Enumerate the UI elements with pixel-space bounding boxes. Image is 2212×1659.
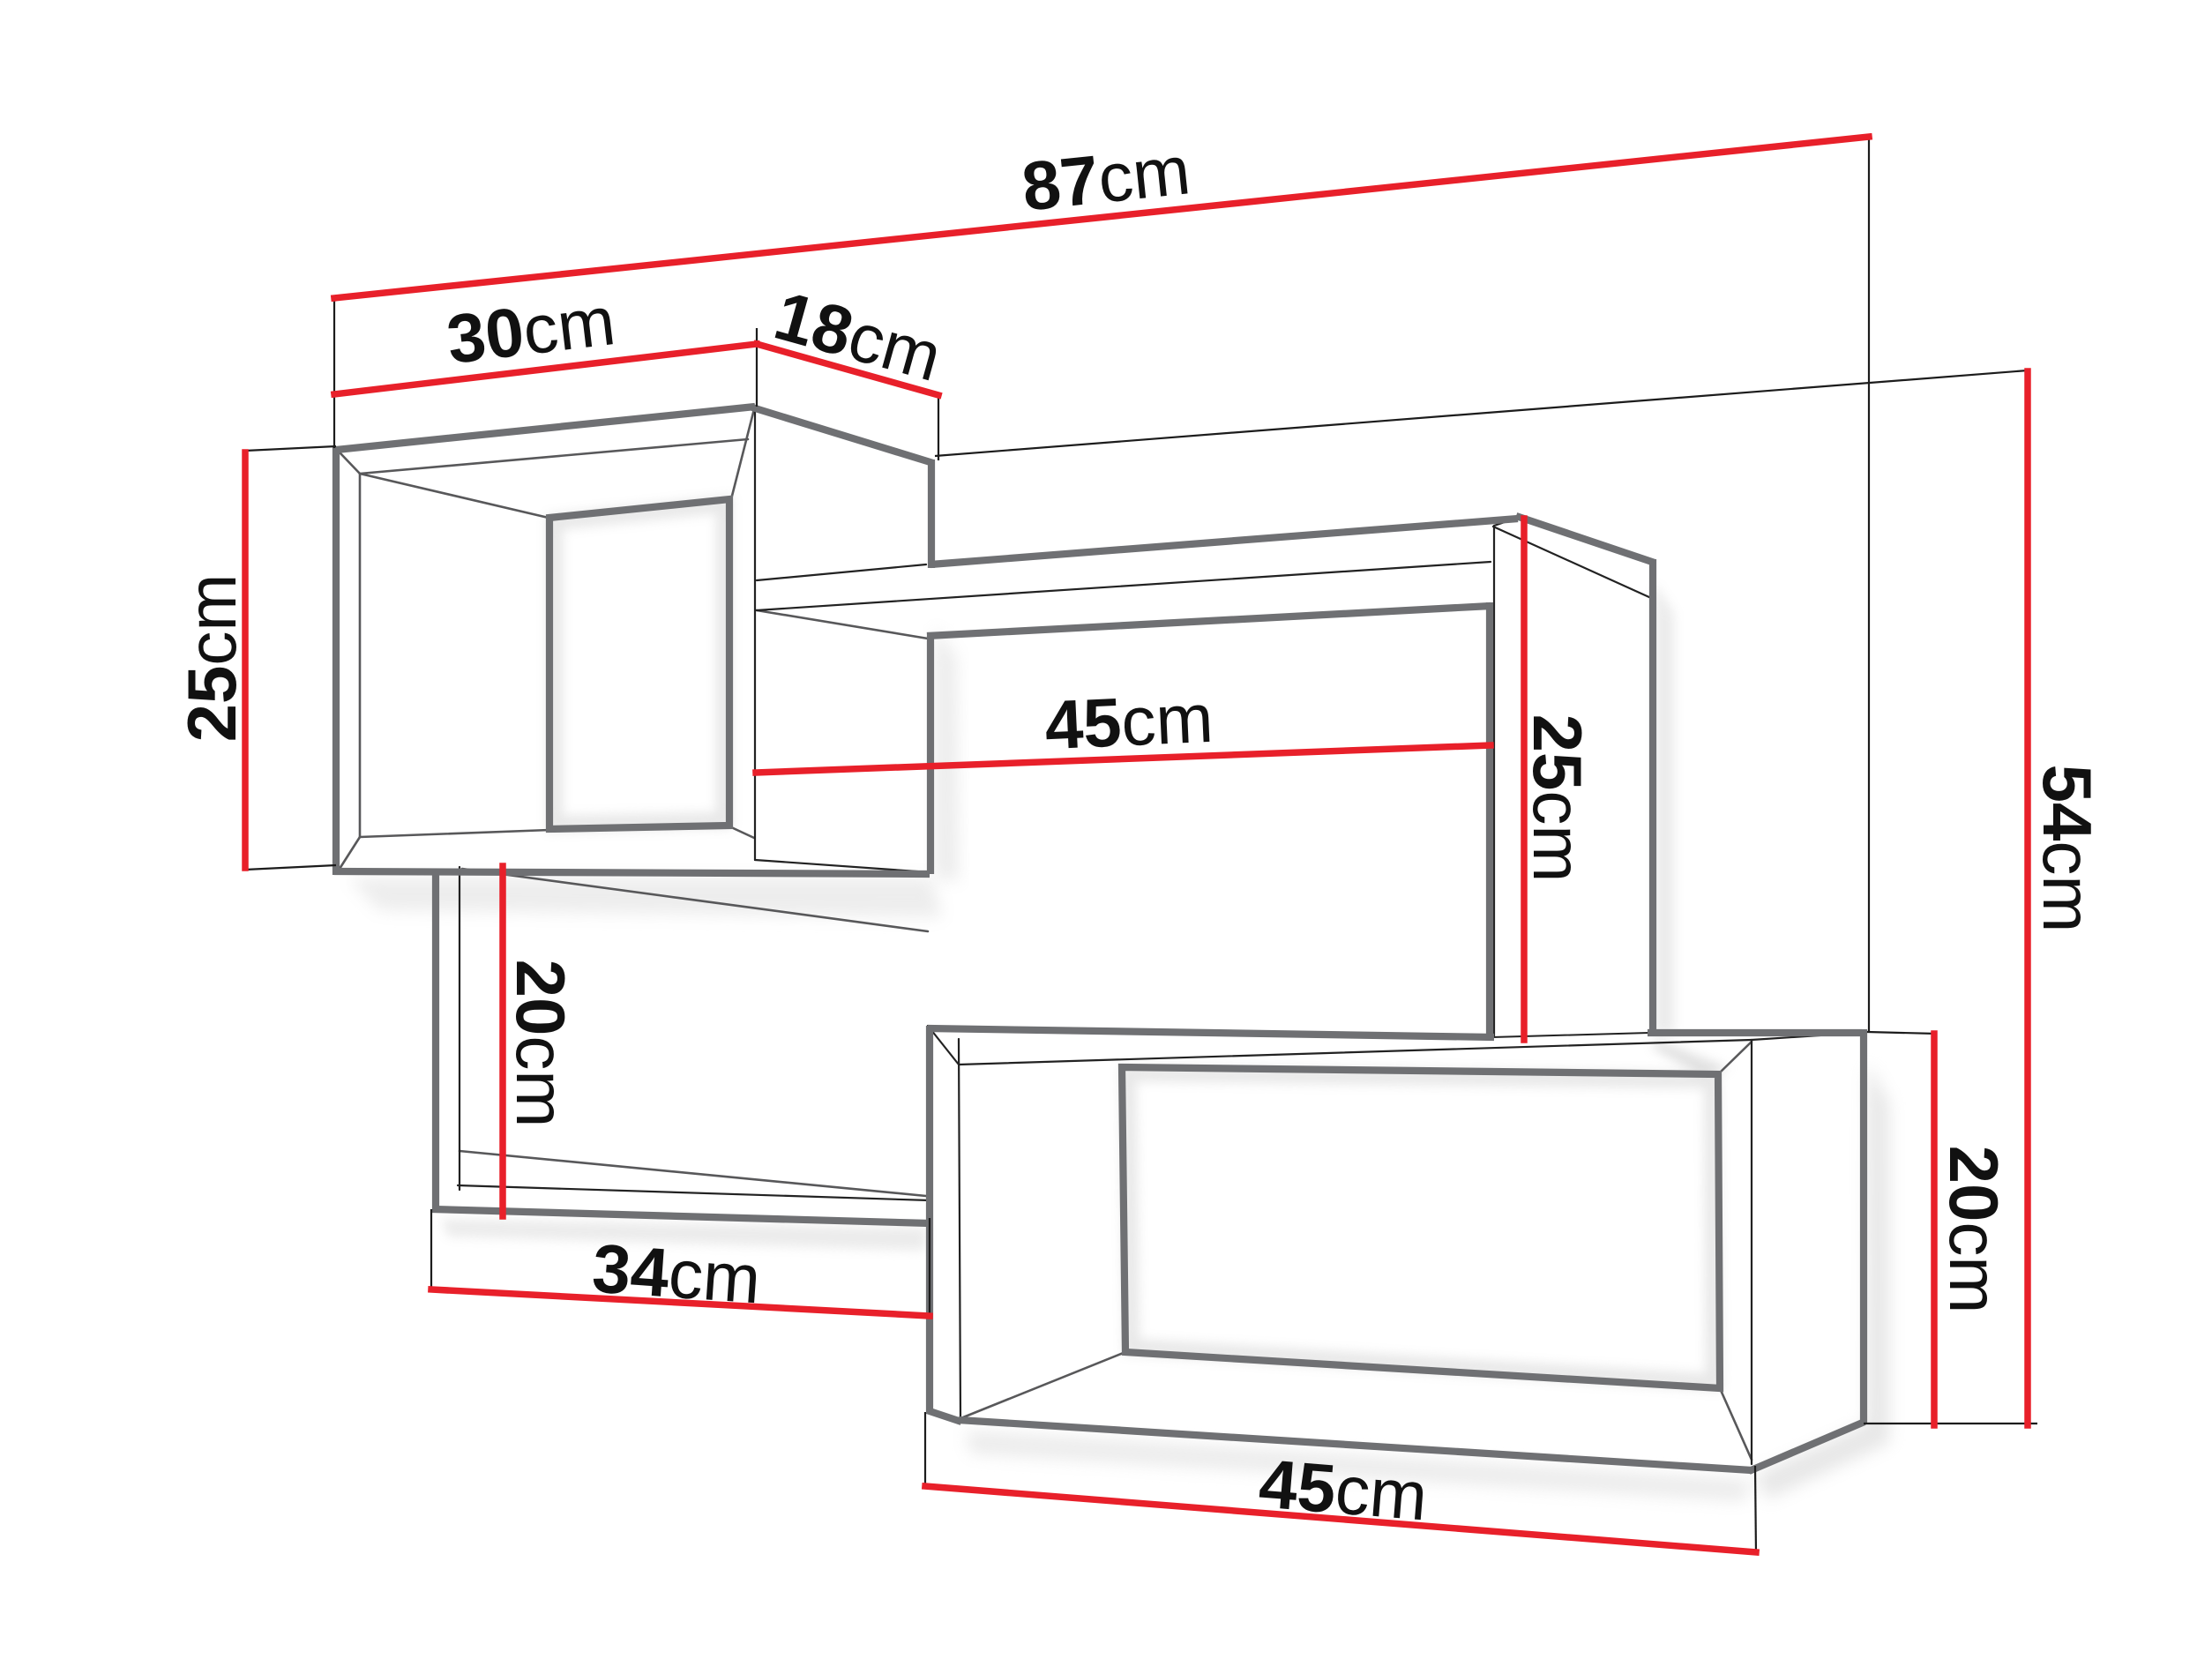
svg-text:20cm: 20cm: [502, 960, 579, 1128]
svg-text:54cm: 54cm: [2029, 765, 2106, 933]
svg-text:45cm: 45cm: [1256, 1444, 1430, 1535]
svg-text:45cm: 45cm: [1043, 679, 1215, 765]
svg-text:25cm: 25cm: [173, 574, 250, 743]
svg-text:25cm: 25cm: [1519, 714, 1596, 883]
svg-text:20cm: 20cm: [1935, 1146, 2013, 1314]
svg-text:34cm: 34cm: [590, 1229, 763, 1318]
